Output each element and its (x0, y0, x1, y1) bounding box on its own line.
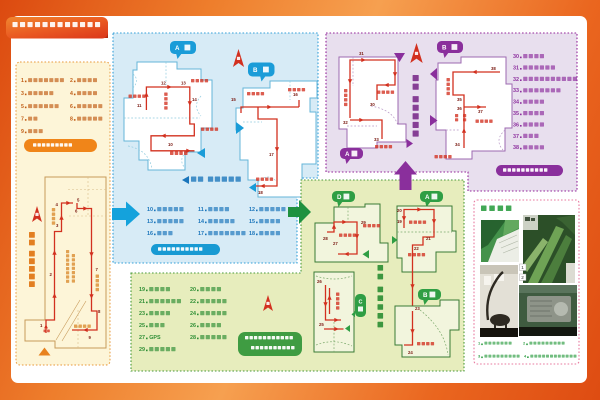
svg-text:21: 21 (139, 299, 145, 305)
svg-text:10: 10 (147, 207, 153, 213)
svg-text:9: 9 (21, 129, 24, 135)
svg-text:15: 15 (231, 97, 236, 102)
svg-text:19: 19 (397, 219, 402, 224)
svg-text:18: 18 (258, 190, 263, 195)
svg-text:A: A (425, 194, 430, 201)
svg-text:28: 28 (323, 236, 328, 241)
svg-text:30: 30 (370, 102, 375, 107)
svg-text:3: 3 (21, 91, 24, 97)
svg-text:31: 31 (359, 51, 364, 56)
svg-text:12: 12 (161, 81, 166, 86)
svg-text:11: 11 (198, 207, 204, 213)
svg-text:30: 30 (513, 54, 519, 60)
svg-text:4: 4 (70, 91, 73, 97)
svg-text:14: 14 (192, 97, 197, 102)
svg-text:13: 13 (147, 219, 153, 225)
svg-text:29: 29 (139, 347, 145, 353)
svg-text:22: 22 (414, 246, 419, 251)
svg-text:18: 18 (249, 231, 255, 237)
svg-text:20: 20 (190, 287, 196, 293)
svg-text:25: 25 (319, 322, 324, 327)
svg-text:33: 33 (374, 137, 379, 142)
svg-text:6: 6 (70, 104, 73, 110)
svg-text:33: 33 (513, 88, 519, 94)
svg-text:27: 27 (139, 335, 145, 341)
svg-text:37: 37 (513, 134, 519, 140)
svg-text:1: 1 (21, 78, 24, 84)
svg-text:38: 38 (491, 66, 496, 71)
svg-text:5: 5 (21, 104, 24, 110)
svg-text:14: 14 (198, 219, 204, 225)
svg-text:38: 38 (513, 145, 519, 151)
svg-text:21: 21 (426, 236, 431, 241)
svg-text:28: 28 (190, 335, 196, 341)
svg-text:GPS: GPS (149, 335, 161, 341)
svg-text:34: 34 (455, 142, 460, 147)
svg-text:25: 25 (139, 323, 145, 329)
svg-text:11: 11 (137, 103, 142, 108)
svg-text:15: 15 (249, 219, 255, 225)
svg-text:32: 32 (343, 120, 348, 125)
svg-text:B: B (442, 44, 447, 51)
svg-text:20: 20 (397, 208, 402, 213)
svg-text:1: 1 (521, 265, 524, 270)
svg-text:16: 16 (147, 231, 153, 237)
svg-text:A: A (175, 45, 180, 52)
svg-text:23: 23 (415, 306, 420, 311)
svg-text:35: 35 (457, 97, 462, 102)
svg-text:12: 12 (249, 207, 255, 213)
svg-text:36: 36 (513, 122, 519, 128)
svg-text:24: 24 (190, 311, 196, 317)
svg-text:10: 10 (168, 142, 173, 147)
svg-text:35: 35 (513, 111, 519, 117)
svg-text:2: 2 (521, 275, 524, 280)
svg-text:13: 13 (181, 81, 186, 86)
svg-text:17: 17 (198, 231, 204, 237)
svg-text:34: 34 (513, 100, 519, 106)
svg-text:31: 31 (513, 65, 519, 71)
svg-text:A: A (345, 151, 350, 158)
svg-text:27: 27 (333, 241, 338, 246)
svg-text:32: 32 (513, 77, 519, 83)
svg-text:8: 8 (70, 116, 73, 122)
svg-text:37: 37 (478, 109, 483, 114)
svg-text:16: 16 (293, 92, 298, 97)
svg-text:7: 7 (21, 116, 24, 122)
svg-text:D: D (337, 194, 342, 201)
svg-text:22: 22 (190, 299, 196, 305)
svg-text:2: 2 (70, 78, 73, 84)
svg-text:19: 19 (139, 287, 145, 293)
svg-text:C: C (359, 300, 363, 306)
svg-text:B: B (423, 292, 428, 299)
svg-text:17: 17 (269, 152, 274, 157)
svg-text:36: 36 (457, 106, 462, 111)
svg-text:B: B (253, 67, 258, 74)
svg-text:23: 23 (139, 311, 145, 317)
svg-text:26: 26 (317, 279, 322, 284)
svg-text:24: 24 (408, 350, 413, 355)
svg-text:26: 26 (190, 323, 196, 329)
